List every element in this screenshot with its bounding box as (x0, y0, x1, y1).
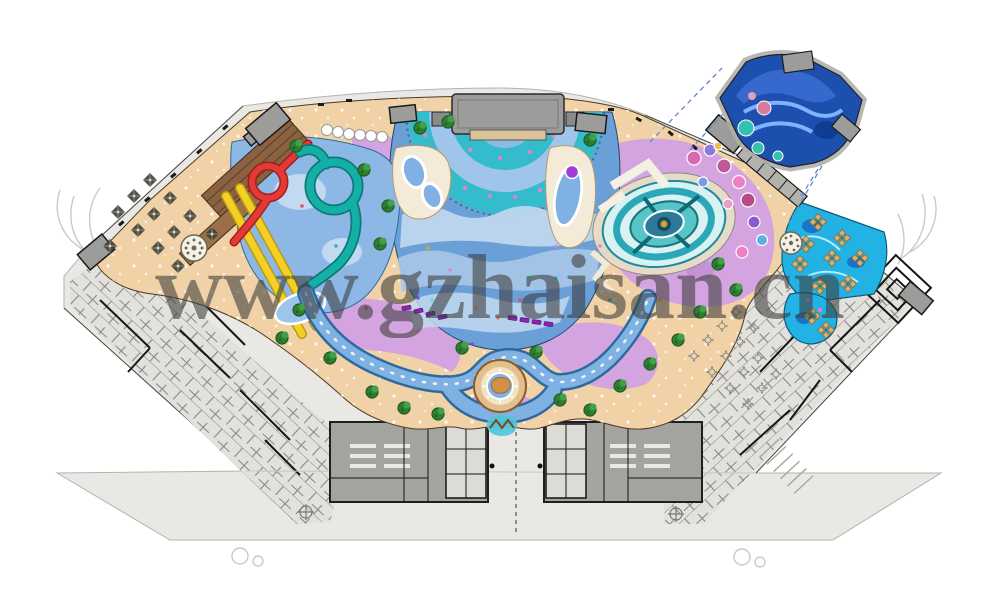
purple-ball-feature (566, 166, 579, 179)
water-park-master-plan: www.gzhaisan.cn (0, 0, 1000, 600)
plan-canvas: www.gzhaisan.cn (0, 0, 1000, 600)
watermark-text: www.gzhaisan.cn (155, 236, 845, 338)
stage-building (432, 94, 584, 140)
